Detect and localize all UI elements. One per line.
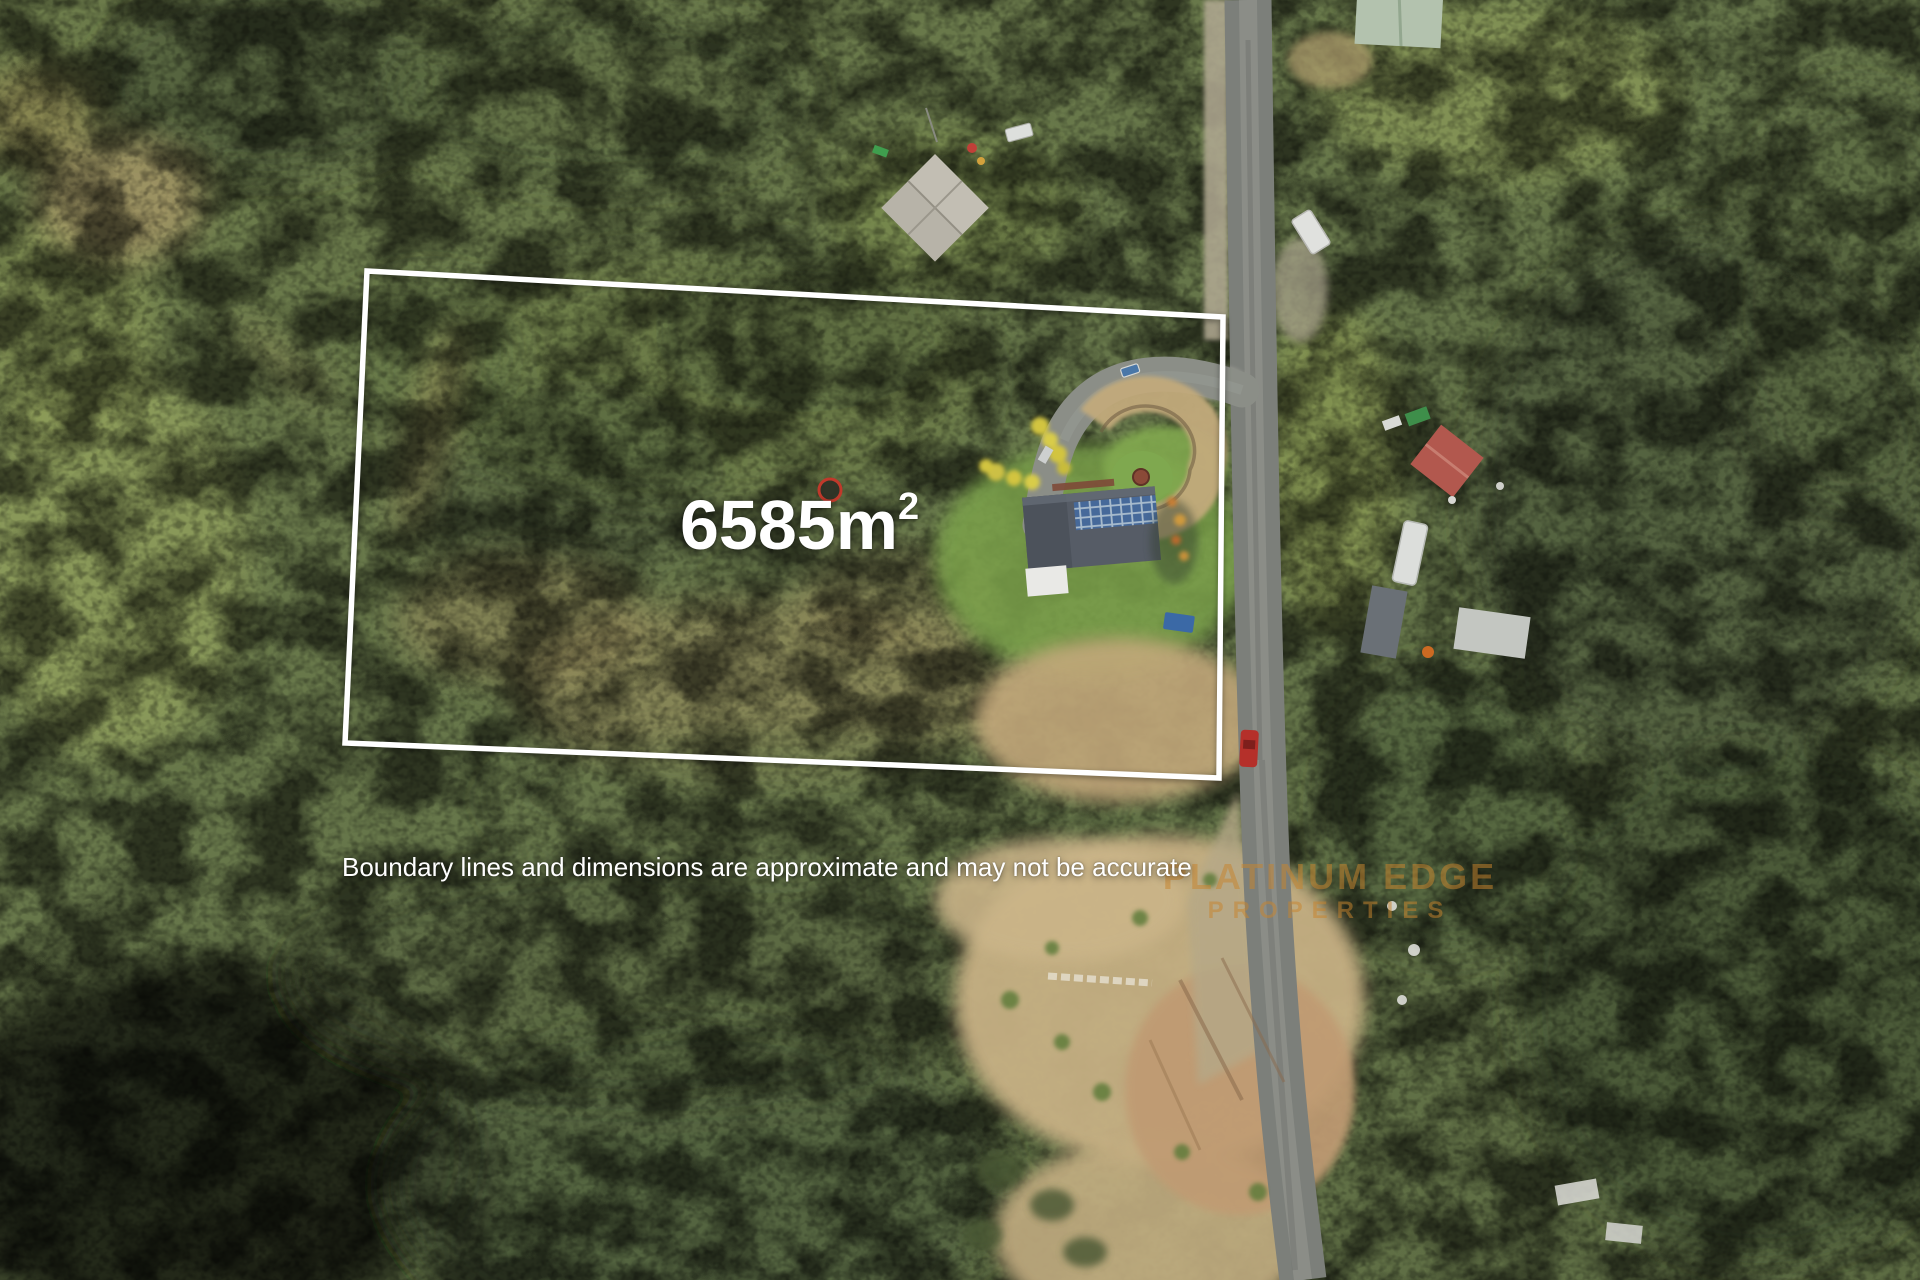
land-area-exponent: 2: [898, 486, 919, 528]
property-boundary-overlay: [0, 0, 1920, 1280]
watermark-line2: PROPERTIES: [1158, 898, 1502, 924]
land-area-label: 6585m2: [680, 490, 919, 560]
aerial-photo: 6585m2 Boundary lines and dimensions are…: [0, 0, 1920, 1280]
boundary-disclaimer-text: Boundary lines and dimensions are approx…: [342, 852, 1192, 883]
watermark-line1: PLATINUM EDGE: [1158, 858, 1502, 896]
land-area-value: 6585m: [680, 486, 898, 564]
agency-watermark: PLATINUM EDGE PROPERTIES: [1158, 858, 1502, 924]
